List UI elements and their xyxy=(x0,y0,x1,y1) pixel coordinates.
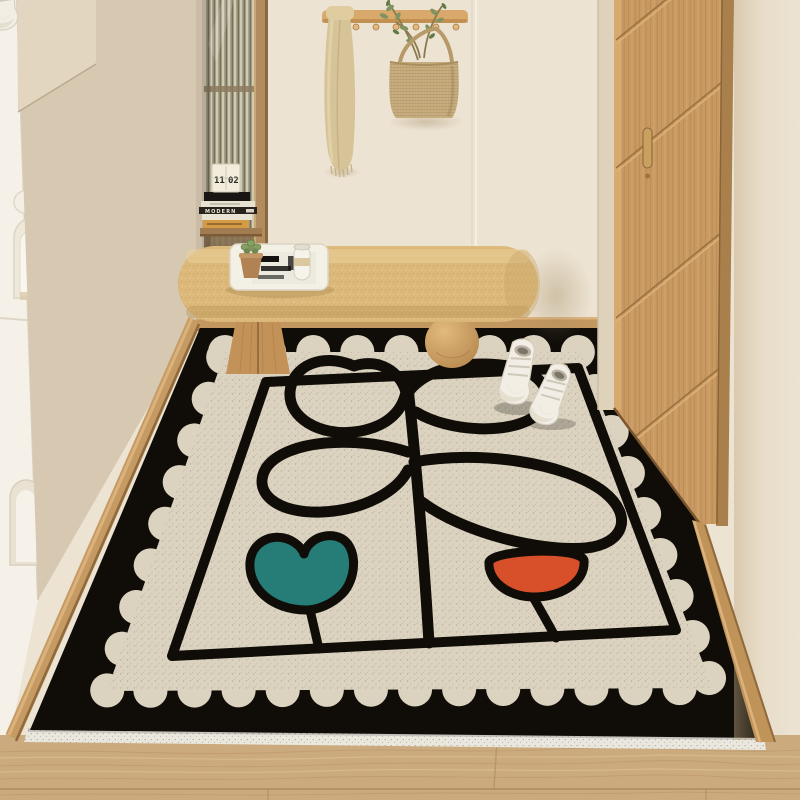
bench-cushion-end-shade xyxy=(504,250,540,318)
book-black xyxy=(204,192,250,201)
book-modern-title: MODERN xyxy=(205,209,236,215)
door-edge-highlight xyxy=(614,0,621,410)
scene-canvas: MODERN 11 02 xyxy=(0,0,800,800)
towel-fold-over-rail xyxy=(326,6,354,20)
basket-weave xyxy=(389,62,459,118)
door-jamb-left xyxy=(598,0,614,410)
door-handle-lever xyxy=(643,128,652,168)
hanging-towel xyxy=(324,6,355,177)
book-orange-band xyxy=(207,223,242,225)
teal-tulip-flower xyxy=(250,536,354,610)
rolled-magazine-band xyxy=(294,258,310,266)
rolled-magazine xyxy=(294,244,310,280)
entryway-photo: MODERN 11 02 xyxy=(0,0,800,800)
right-wall-shade xyxy=(734,0,800,740)
rolled-magazine-end xyxy=(294,244,310,250)
arch-decor-lower-inner xyxy=(16,490,36,562)
bench-tray xyxy=(226,240,334,298)
bench-leg-ball xyxy=(425,316,479,368)
book-modern-logo xyxy=(246,209,254,213)
flip-calendar: 11 02 xyxy=(212,164,240,192)
book-white-upper-band xyxy=(210,203,240,205)
pot-rim xyxy=(239,253,263,258)
door-keyhole xyxy=(645,174,650,179)
orange-tulip-flower xyxy=(489,551,584,597)
sneaker xyxy=(0,0,18,30)
bench-leg-left xyxy=(226,320,290,374)
book-shelf-board-edge xyxy=(200,234,262,237)
shelf-divider-upper xyxy=(204,86,254,92)
bench-cushion-underside xyxy=(186,306,530,318)
